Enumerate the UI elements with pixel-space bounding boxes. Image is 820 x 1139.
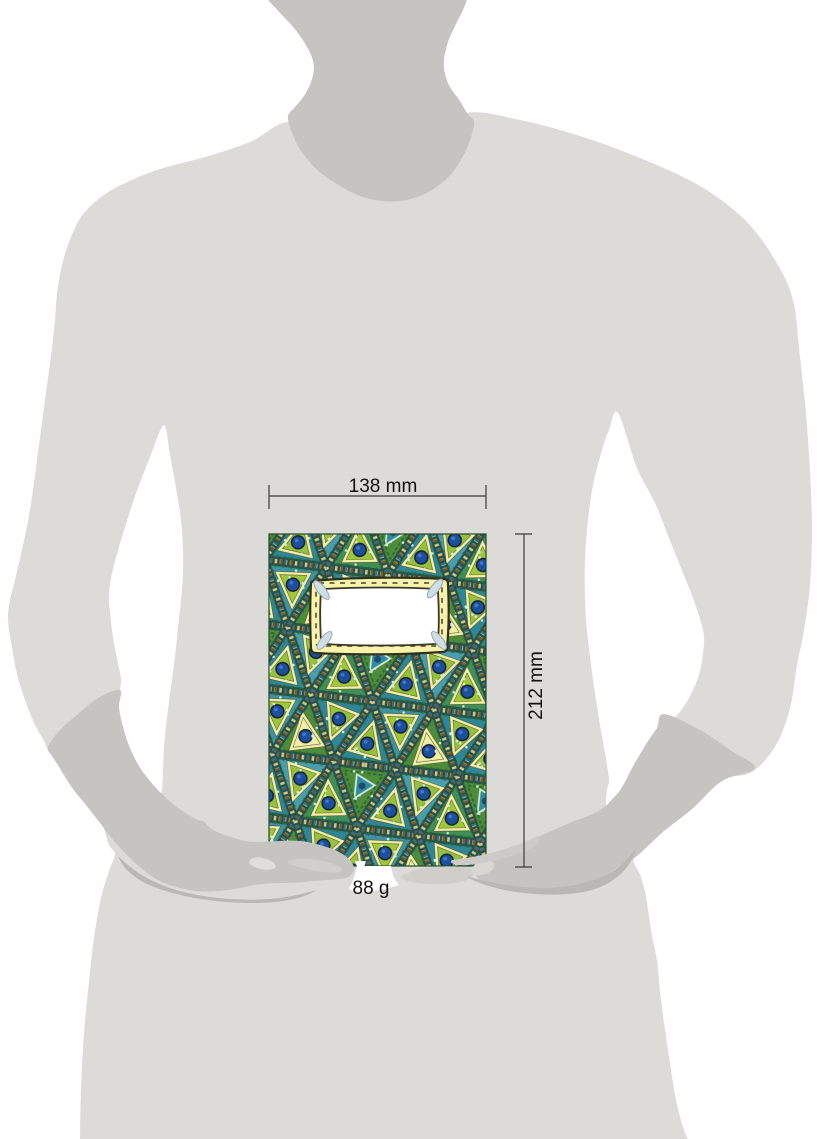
svg-text:88 g: 88 g: [353, 878, 390, 899]
svg-text:138 mm: 138 mm: [349, 476, 418, 497]
svg-text:212 mm: 212 mm: [526, 651, 547, 720]
